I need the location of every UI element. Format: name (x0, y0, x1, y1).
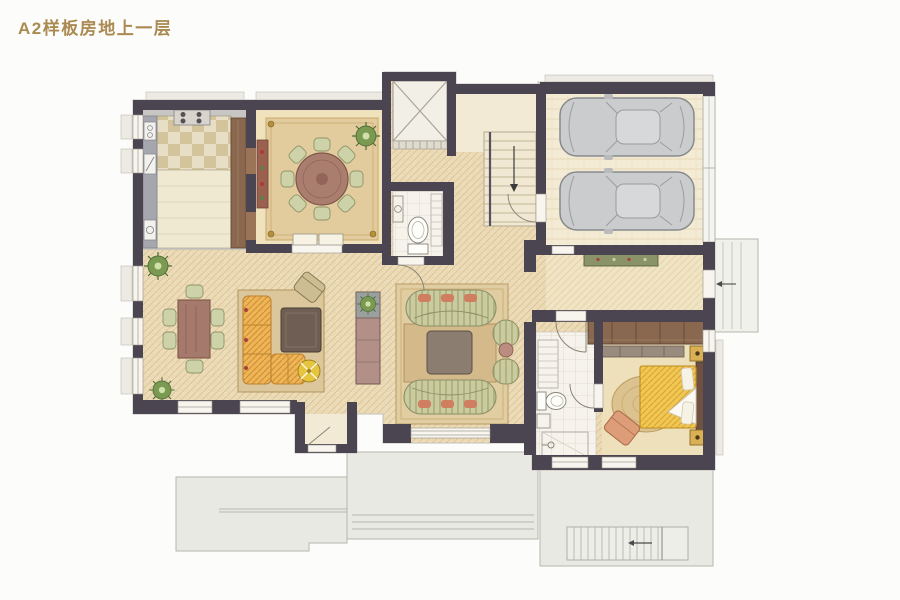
powder-vanity (393, 196, 403, 222)
exterior-stairs-south (567, 527, 688, 560)
terrace-center (347, 452, 538, 539)
floor-plan (0, 0, 900, 600)
room-kitchen (143, 110, 246, 250)
rect-dining-table (178, 300, 210, 358)
round-side-table (298, 360, 320, 382)
hallway (546, 253, 704, 312)
exterior-steps-east (714, 239, 758, 332)
elevator (393, 81, 447, 149)
plant-living-1 (144, 252, 172, 280)
car-2 (560, 168, 694, 234)
coffee-table-square (281, 308, 321, 352)
plant-dining (352, 122, 380, 150)
car-1 (560, 94, 694, 160)
page: A2样板房地上一层 (0, 0, 900, 600)
round-dining-table (296, 153, 348, 205)
terrace-left (176, 477, 347, 551)
bed-pillow-1 (681, 367, 694, 390)
family-coffee-table (427, 331, 472, 374)
bed (640, 362, 705, 432)
kitchen-sink (144, 122, 156, 140)
curved-sofa-top (406, 290, 496, 326)
vestibule-door-gap (308, 445, 336, 452)
room-family (396, 284, 519, 435)
plant-living-2 (149, 377, 174, 402)
garage-doors (703, 96, 715, 242)
powder-toilet (408, 217, 428, 254)
door-east-steps (703, 270, 715, 298)
sideboard (356, 292, 380, 384)
kitchen-stove (174, 110, 210, 125)
wardrobe-shelf (598, 346, 684, 357)
curved-sofa-bottom (404, 380, 496, 414)
door-garage-hall (552, 246, 574, 254)
bathroom-ensuite (536, 332, 596, 457)
bed-pillow-2 (681, 402, 694, 425)
bath-cabinet (537, 414, 550, 428)
vestibule-floor (305, 414, 347, 444)
east-ledge (716, 340, 723, 455)
sliding-door-family (411, 428, 490, 438)
plant-sideboard (358, 294, 379, 315)
powder-closet (431, 194, 442, 246)
room-bedroom (588, 320, 706, 456)
dining-console (257, 140, 268, 208)
shower (542, 432, 588, 457)
plan-title: A2样板房地上一层 (18, 14, 172, 39)
kitchen-island (157, 170, 231, 248)
kitchen-tall-cabinet (231, 118, 246, 248)
kitchen-appliance (144, 220, 156, 240)
room-dining (256, 110, 382, 246)
bath-shelves (538, 340, 558, 388)
armchair-side-table (499, 343, 513, 357)
powder-room (393, 191, 443, 257)
room-garage (546, 92, 715, 247)
bath-toilet (537, 392, 566, 410)
terrace-right (540, 467, 713, 566)
staircase (484, 132, 536, 226)
